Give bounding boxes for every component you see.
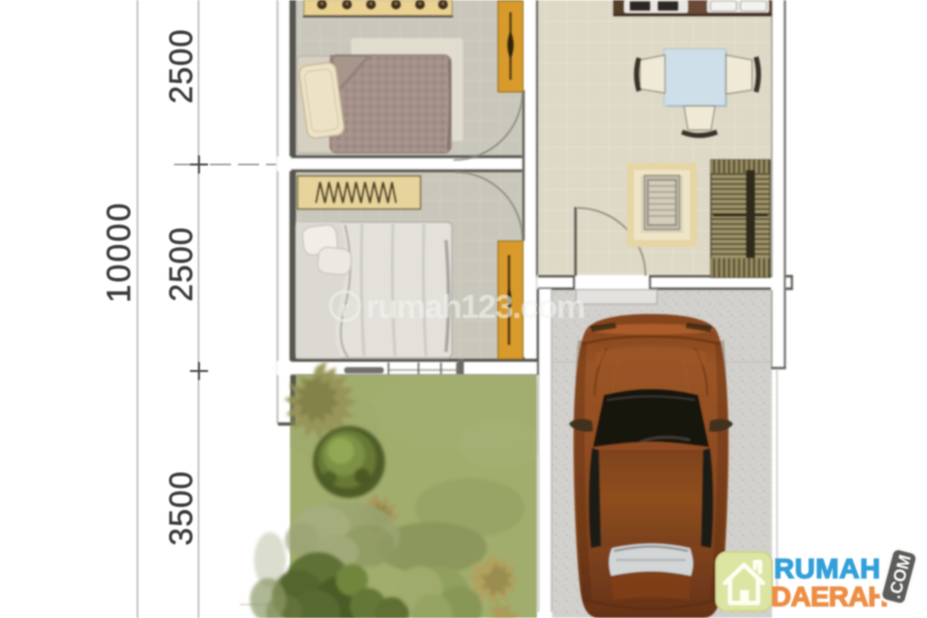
svg-text:RUMAH: RUMAH xyxy=(774,553,881,584)
svg-text:rumah123.com: rumah123.com xyxy=(366,288,585,325)
svg-text:10000: 10000 xyxy=(100,201,137,303)
svg-text:2500: 2500 xyxy=(163,226,199,301)
svg-text:3500: 3500 xyxy=(163,470,199,545)
svg-text:DAERAH: DAERAH xyxy=(771,581,888,612)
svg-text:r: r xyxy=(341,296,350,321)
svg-text:2500: 2500 xyxy=(163,28,199,103)
